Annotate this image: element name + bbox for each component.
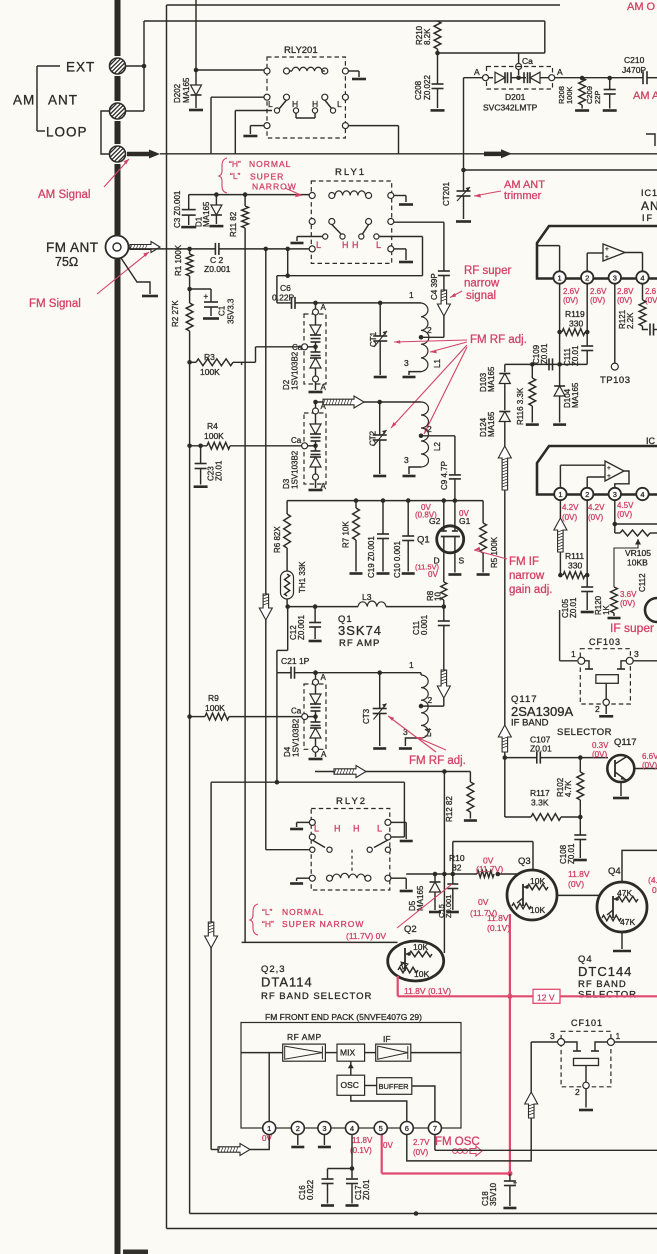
svg-text:0.001: 0.001 (420, 614, 429, 635)
svg-text:Z0.001: Z0.001 (297, 615, 306, 640)
svg-text:(0V): (0V) (590, 296, 605, 305)
svg-text:+: + (607, 473, 611, 480)
svg-text:1: 1 (558, 274, 562, 283)
svg-text:BUFFER: BUFFER (379, 1082, 410, 1091)
svg-text:4.5V: 4.5V (617, 501, 634, 510)
svg-text:5: 5 (379, 1124, 383, 1133)
svg-text:L4: L4 (424, 728, 433, 737)
svg-text:Z0.01: Z0.01 (215, 460, 224, 481)
svg-text:(0V): (0V) (568, 879, 584, 889)
svg-text:Q4: Q4 (608, 866, 621, 877)
svg-text:3: 3 (634, 649, 639, 659)
svg-text:11.8V: 11.8V (352, 1136, 373, 1145)
svg-text:2: 2 (595, 704, 600, 714)
svg-text:3: 3 (613, 274, 617, 283)
svg-text:R119: R119 (565, 309, 585, 319)
svg-text:signal: signal (466, 290, 496, 302)
svg-text:(11.7V) 0V: (11.7V) 0V (346, 931, 386, 941)
svg-text:C208: C208 (414, 80, 423, 100)
svg-text:H: H (312, 99, 318, 109)
svg-text:(0.1V): (0.1V) (487, 923, 510, 933)
svg-text:3.6V: 3.6V (620, 590, 637, 599)
svg-text:TH1 33K: TH1 33K (298, 561, 307, 593)
svg-text:L: L (316, 240, 321, 250)
svg-text:L: L (314, 824, 319, 834)
svg-text:CT3: CT3 (362, 708, 371, 724)
svg-text:MA165: MA165 (487, 411, 496, 437)
svg-text:RF super: RF super (464, 265, 511, 277)
svg-text:1SV103B2: 1SV103B2 (292, 718, 301, 757)
svg-text:11.8V: 11.8V (568, 869, 590, 879)
svg-text:3: 3 (404, 455, 409, 465)
svg-text:(0V: (0V (645, 296, 657, 305)
svg-text:(0V): (0V) (563, 296, 578, 305)
svg-text:(0.1V): (0.1V) (350, 1146, 372, 1155)
svg-text:A: A (474, 67, 480, 77)
svg-text:C4 39P: C4 39P (430, 273, 439, 300)
svg-text:47K: 47K (620, 917, 635, 927)
svg-text:1: 1 (409, 290, 414, 300)
svg-text:3: 3 (613, 490, 617, 499)
svg-text:A: A (321, 750, 327, 759)
svg-text:SUPER NARROW: SUPER NARROW (282, 919, 364, 929)
svg-text:A: A (321, 303, 327, 312)
svg-text:2: 2 (428, 695, 433, 705)
svg-text:100K: 100K (200, 367, 220, 377)
svg-text:Z0.01: Z0.01 (569, 597, 578, 618)
svg-text:RF AMP: RF AMP (287, 1032, 322, 1042)
svg-text:OSC: OSC (341, 1080, 359, 1090)
svg-text:H: H (334, 824, 341, 834)
svg-text:L: L (377, 824, 382, 834)
svg-text:100K: 100K (565, 86, 574, 104)
svg-text:100K: 100K (205, 703, 225, 713)
svg-text:FM RF adj.: FM RF adj. (470, 334, 527, 346)
svg-text:R7 10K: R7 10K (342, 521, 351, 548)
svg-text:10K: 10K (413, 942, 428, 952)
svg-text:(0V): (0V) (620, 599, 635, 608)
svg-text:R11 82: R11 82 (229, 211, 238, 237)
svg-text:TP103: TP103 (600, 375, 631, 386)
svg-text:2.6V: 2.6V (590, 287, 607, 296)
svg-text:330: 330 (569, 319, 583, 329)
svg-text:R5 100K: R5 100K (490, 536, 499, 568)
svg-text:2: 2 (585, 490, 589, 499)
svg-text:2.6: 2.6 (645, 287, 657, 296)
svg-text:CT2: CT2 (369, 430, 378, 446)
svg-text:Z0.022: Z0.022 (423, 75, 432, 100)
svg-text:(11.7V): (11.7V) (476, 864, 503, 874)
svg-text:3SK74: 3SK74 (338, 623, 382, 638)
svg-text:35V10: 35V10 (489, 1182, 498, 1206)
svg-text:1: 1 (267, 1124, 271, 1133)
svg-text:CT201: CT201 (442, 181, 451, 206)
svg-text:Z0.01: Z0.01 (571, 345, 580, 366)
svg-text:H: H (292, 99, 298, 109)
svg-text:1: 1 (558, 490, 562, 499)
svg-text:1SV103B2: 1SV103B2 (291, 351, 300, 390)
svg-text:A: A (321, 383, 327, 392)
svg-text:“H”: “H” (262, 919, 274, 929)
svg-text:C9 4.7P: C9 4.7P (440, 461, 449, 490)
svg-text:6: 6 (405, 1124, 409, 1133)
svg-text:H: H (342, 240, 349, 250)
svg-text:330: 330 (568, 561, 582, 571)
svg-text:R117: R117 (530, 788, 550, 798)
svg-text:1K: 1K (602, 605, 611, 615)
svg-text:Q3: Q3 (518, 856, 531, 867)
svg-text:IF: IF (383, 1034, 391, 1044)
svg-text:L: L (337, 99, 342, 109)
svg-text:D202: D202 (173, 83, 182, 103)
svg-text:+: + (204, 292, 209, 301)
svg-text:DTA114: DTA114 (261, 975, 313, 990)
svg-text:RF BAND SELECTOR: RF BAND SELECTOR (261, 991, 372, 1002)
svg-text:NORMAL: NORMAL (282, 907, 324, 917)
svg-text:Q2,3: Q2,3 (261, 964, 286, 975)
svg-text:11.8V: 11.8V (487, 913, 509, 923)
svg-text:H: H (352, 240, 359, 250)
svg-text:R10: R10 (449, 853, 465, 863)
svg-text:Ca: Ca (292, 343, 303, 352)
svg-text:IC1: IC1 (641, 188, 657, 198)
svg-text:3: 3 (322, 1124, 326, 1133)
svg-text:2: 2 (296, 1124, 300, 1133)
svg-text:4: 4 (640, 274, 644, 283)
svg-text:RLY2: RLY2 (336, 796, 367, 807)
svg-text:(0V): (0V) (642, 761, 657, 770)
svg-text:FM Signal: FM Signal (29, 298, 81, 310)
svg-text:6.6V: 6.6V (642, 752, 657, 761)
svg-text:Z0.001: Z0.001 (204, 264, 231, 274)
svg-text:C210: C210 (624, 55, 645, 65)
svg-text:(0V): (0V) (588, 513, 603, 522)
svg-text:4.7K: 4.7K (564, 780, 573, 797)
svg-text:2: 2 (575, 1087, 580, 1097)
svg-text:100K: 100K (204, 431, 224, 441)
svg-text:H: H (353, 824, 360, 834)
svg-text:8.2K: 8.2K (423, 28, 432, 45)
svg-text:10K: 10K (414, 969, 429, 979)
svg-text:C6: C6 (280, 283, 291, 293)
svg-text:IC: IC (646, 436, 656, 446)
svg-text:“L”: “L” (262, 907, 273, 917)
svg-text:0V: 0V (428, 570, 438, 579)
svg-text:2.7V: 2.7V (413, 1138, 430, 1147)
svg-text:2: 2 (427, 424, 432, 434)
svg-text:35V3.3: 35V3.3 (227, 298, 236, 324)
svg-text:C3 Z0.001: C3 Z0.001 (173, 190, 182, 228)
svg-text:2.6V: 2.6V (563, 287, 580, 296)
svg-text:2: 2 (427, 325, 432, 335)
svg-text:C112: C112 (638, 573, 647, 592)
svg-text:RF AMP: RF AMP (339, 638, 380, 649)
svg-text:R116 3.3K: R116 3.3K (516, 387, 525, 425)
svg-text:+: + (605, 254, 609, 261)
svg-text:+: + (607, 465, 611, 472)
svg-text:IF: IF (642, 213, 654, 223)
svg-text:A: A (557, 67, 563, 77)
svg-text:0V: 0V (383, 1141, 393, 1150)
svg-text:IF BAND: IF BAND (511, 718, 549, 729)
svg-text:LOOP: LOOP (46, 125, 88, 140)
svg-text:10K: 10K (530, 876, 545, 886)
svg-text:AM A: AM A (633, 90, 657, 102)
svg-text:“H”: “H” (229, 159, 241, 169)
svg-text:R1 100K: R1 100K (174, 244, 183, 276)
svg-text:2: 2 (585, 274, 589, 283)
svg-text:FM RF adj.: FM RF adj. (409, 755, 466, 767)
svg-text:(0V): (0V) (592, 750, 607, 759)
svg-text:RLY1: RLY1 (335, 167, 366, 178)
svg-text:R2 27K: R2 27K (171, 300, 180, 327)
svg-text:0: 0 (652, 885, 657, 895)
svg-text:4: 4 (640, 490, 644, 499)
svg-text:3.3K: 3.3K (531, 798, 549, 808)
svg-text:4: 4 (350, 1124, 354, 1133)
svg-text:L: L (268, 99, 273, 109)
svg-text:ANT: ANT (48, 93, 78, 108)
svg-text:11.8V (0.1V): 11.8V (0.1V) (404, 986, 451, 996)
svg-text:L1: L1 (433, 359, 442, 368)
svg-text:(0V): (0V) (617, 296, 632, 305)
svg-text:0V: 0V (262, 1134, 272, 1143)
svg-text:C1: C1 (218, 305, 227, 316)
svg-text:(4.7: (4.7 (648, 875, 657, 885)
svg-text:MA165: MA165 (571, 382, 580, 408)
svg-text:RLY201: RLY201 (284, 45, 318, 56)
svg-text:10: 10 (434, 592, 443, 601)
svg-text:MA165: MA165 (182, 77, 191, 103)
svg-text:(0V): (0V) (562, 513, 577, 522)
svg-text:R4: R4 (207, 421, 218, 431)
svg-text:gain adj.: gain adj. (509, 584, 552, 596)
svg-text:RF BAND: RF BAND (578, 979, 627, 990)
svg-text:FM OSC: FM OSC (435, 1136, 480, 1148)
svg-text:Ca: Ca (291, 436, 302, 445)
svg-text:Z0.01: Z0.01 (530, 744, 552, 754)
svg-text:R9: R9 (208, 693, 219, 703)
svg-text:75Ω: 75Ω (55, 255, 78, 269)
svg-text:(0V): (0V) (617, 510, 632, 519)
svg-text:R111: R111 (565, 551, 584, 561)
svg-text:1: 1 (571, 649, 576, 659)
svg-text:L2: L2 (433, 442, 442, 451)
svg-text:SUPER: SUPER (250, 172, 284, 182)
svg-text:(0V): (0V) (413, 1148, 428, 1157)
svg-text:FM FRONT END PACK (5NVFE407G: FM FRONT END PACK (5NVFE407G 29) (265, 1012, 422, 1022)
svg-text:MA165: MA165 (202, 201, 211, 227)
svg-text:C19 Z0.001: C19 Z0.001 (367, 536, 376, 578)
svg-text:Z0.01: Z0.01 (540, 343, 549, 364)
svg-text:MIX: MIX (340, 1048, 355, 1058)
svg-text:1SV103B2: 1SV103B2 (291, 450, 300, 489)
svg-text:narrow: narrow (509, 570, 545, 582)
svg-text:CF103: CF103 (589, 637, 621, 647)
svg-text:2.8V: 2.8V (617, 287, 634, 296)
svg-text:1: 1 (616, 1031, 621, 1041)
svg-text:AM Signal: AM Signal (38, 189, 90, 201)
svg-text:VR105: VR105 (625, 548, 651, 558)
svg-text:C21 1P: C21 1P (281, 656, 310, 666)
svg-text:SELECTOR: SELECTOR (557, 727, 612, 738)
svg-text:0.022: 0.022 (306, 1179, 315, 1200)
svg-text:FM IF: FM IF (509, 556, 539, 568)
svg-text:4.2V: 4.2V (588, 503, 605, 512)
svg-text:DTC144: DTC144 (578, 964, 632, 979)
svg-text:1: 1 (409, 660, 414, 670)
svg-text:FM ANT: FM ANT (46, 240, 99, 255)
svg-text:+: + (605, 246, 609, 253)
svg-text:C10 0.001: C10 0.001 (393, 541, 402, 578)
svg-text:AN: AN (641, 199, 657, 213)
svg-text:S: S (459, 556, 465, 566)
svg-text:EXT: EXT (66, 60, 95, 75)
svg-text:3: 3 (550, 1031, 555, 1041)
svg-text:AM O: AM O (627, 1, 656, 13)
svg-text:4.2V: 4.2V (562, 503, 579, 512)
svg-text:R12 82: R12 82 (445, 796, 454, 822)
svg-text:R6 82X: R6 82X (273, 526, 282, 553)
svg-text:L3: L3 (362, 592, 372, 602)
svg-text:IF super: IF super (610, 621, 654, 635)
svg-text:Q1: Q1 (417, 535, 430, 546)
svg-text:12 V: 12 V (537, 993, 555, 1003)
svg-text:22P: 22P (593, 91, 602, 104)
svg-text:SVC342LMTP: SVC342LMTP (483, 103, 538, 113)
svg-text:AM: AM (13, 93, 35, 108)
svg-text:10KB: 10KB (627, 558, 648, 568)
svg-text:0V: 0V (459, 509, 469, 518)
svg-text:82: 82 (452, 863, 462, 873)
svg-text:trimmer: trimmer (504, 190, 542, 202)
svg-text:narrow: narrow (464, 278, 500, 290)
svg-text:SELECTOR: SELECTOR (578, 990, 637, 1001)
svg-text:0V: 0V (478, 897, 489, 907)
svg-text:Ca: Ca (291, 707, 302, 716)
svg-text:Z0.001: Z0.001 (444, 895, 453, 918)
svg-text:Ca: Ca (522, 56, 533, 66)
svg-text:D201: D201 (505, 92, 526, 102)
svg-text:10K: 10K (530, 905, 545, 915)
svg-text:(0.8V): (0.8V) (415, 511, 437, 520)
svg-text:Q2: Q2 (404, 924, 417, 935)
svg-text:Q117: Q117 (614, 737, 637, 748)
svg-text:“L”: “L” (230, 171, 241, 181)
svg-text:0.3V: 0.3V (592, 741, 609, 750)
svg-text:MA165: MA165 (487, 366, 496, 392)
svg-text:CF101: CF101 (571, 1018, 603, 1028)
svg-text:7: 7 (433, 1124, 437, 1133)
svg-text:47K: 47K (617, 888, 632, 898)
svg-text:L: L (376, 240, 381, 250)
svg-text:Z0.01: Z0.01 (362, 1179, 371, 1200)
svg-text:NORMAL: NORMAL (249, 159, 291, 169)
svg-text:CT1: CT1 (369, 331, 378, 347)
svg-text:A: A (321, 673, 327, 682)
svg-text:2.2K: 2.2K (626, 312, 635, 329)
svg-text:3: 3 (404, 358, 409, 368)
